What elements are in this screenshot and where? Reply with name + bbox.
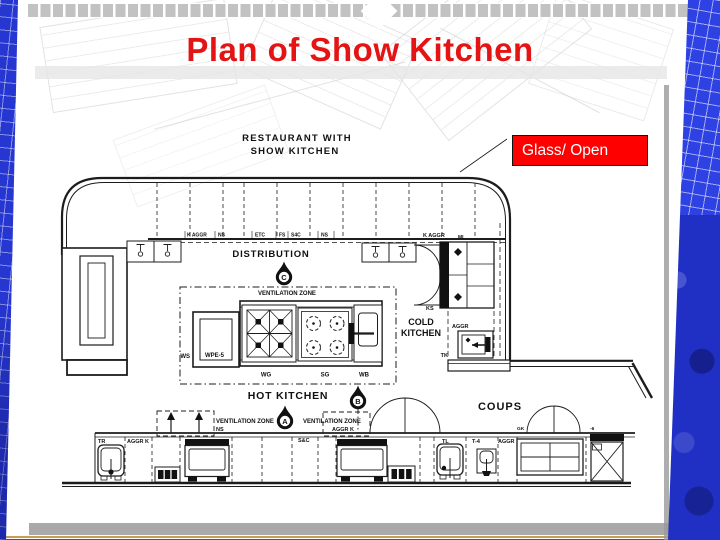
slide-title: Plan of Show Kitchen — [0, 31, 720, 69]
label-ml: ML — [458, 235, 465, 241]
label-tk: TK — [441, 353, 448, 359]
glass-open-label: Glass/ Open — [522, 142, 608, 159]
plan-heading-line1: RESTAURANT WITH — [242, 133, 352, 144]
top-counter-labels: K AGGR NS ETC FS S4C NS — [187, 233, 329, 239]
label-fs: FS — [279, 233, 286, 239]
top-checker-band — [28, 3, 688, 18]
marker-b-letter: B — [355, 397, 361, 406]
slide: Plan of Show Kitchen RESTAURANT WITH SHO… — [0, 0, 720, 540]
section-marker-a: A — [277, 406, 293, 430]
label-ks: KS — [426, 306, 434, 312]
three-bay-unit-left — [155, 467, 180, 482]
label-tl: TL — [442, 439, 449, 445]
label-bottom-aggr: AGGR — [498, 439, 515, 445]
double-door-2 — [527, 406, 580, 433]
label-t4: T-4 — [472, 439, 481, 445]
label-k-aggr: K AGGR — [187, 233, 207, 239]
footer-tan-line — [0, 536, 720, 538]
cold-kitchen-line1: COLD — [408, 317, 434, 327]
label-s4c: S4C — [291, 233, 301, 239]
slide-shadow — [664, 85, 669, 540]
label-sc: S&C — [298, 438, 310, 444]
plan-heading-line2: SHOW KITCHEN — [251, 146, 340, 157]
section-marker-b: B — [350, 386, 366, 410]
glass-open-callout: Glass/ Open — [512, 135, 648, 166]
label-ns: NS — [218, 233, 226, 239]
cooking-island — [180, 287, 396, 384]
three-bay-unit-right — [388, 466, 415, 482]
cold-kitchen — [414, 223, 652, 398]
work-table — [517, 439, 583, 475]
label-gk: GK — [517, 426, 525, 432]
x-marked-unit — [590, 434, 624, 481]
label-sg: SG — [321, 373, 330, 379]
floor-plan-drawing: RESTAURANT WITH SHOW KITCHEN — [30, 115, 675, 495]
coups-label: COUPS — [478, 401, 522, 413]
double-door-1 — [370, 398, 440, 433]
sink-unit-left — [98, 445, 124, 480]
ventilation-zone-right: VENTILATION ZONE — [303, 419, 361, 425]
label-cold-k-aggr: K AGGR — [423, 233, 445, 239]
label-tr: TR — [98, 439, 105, 445]
sink-unit-tl — [437, 444, 463, 479]
label-wpe5: WPE-5 — [205, 353, 225, 359]
label-cold-aggr: AGGR — [452, 324, 469, 330]
ventilation-zone-island: VENTILATION ZONE — [258, 291, 316, 297]
left-blueprint-border — [0, 0, 18, 540]
range-unit-center — [337, 439, 387, 482]
label-aggr-k: AGGR K — [127, 439, 149, 445]
label-minus6: -6 — [590, 426, 595, 432]
label-etc: ETC — [255, 233, 265, 239]
label-ws: WS — [180, 354, 190, 360]
t4-unit — [477, 449, 496, 476]
label-ns2: NS — [321, 233, 329, 239]
left-window-column — [62, 248, 127, 375]
hot-kitchen-area: HOT KITCHEN A B — [248, 386, 366, 434]
ventilation-zone-left: VENTILATION ZONE — [216, 419, 274, 425]
plan-heading: RESTAURANT WITH SHOW KITCHEN — [242, 133, 352, 157]
label-wg: WG — [261, 373, 272, 379]
hot-kitchen-label: HOT KITCHEN — [248, 390, 329, 402]
footer-gray-bar — [29, 523, 675, 535]
section-marker-c: C — [276, 262, 292, 286]
marker-a-letter: A — [282, 417, 288, 426]
label-wb: WB — [359, 373, 370, 379]
range-unit-left — [185, 439, 229, 482]
marker-c-letter: C — [281, 273, 287, 282]
coups-area: COUPS — [370, 398, 580, 433]
cold-kitchen-line2: KITCHEN — [401, 328, 441, 338]
distribution-area: DISTRIBUTION C — [232, 249, 309, 285]
callout-leader-line — [460, 139, 507, 172]
distribution-label: DISTRIBUTION — [232, 249, 309, 260]
